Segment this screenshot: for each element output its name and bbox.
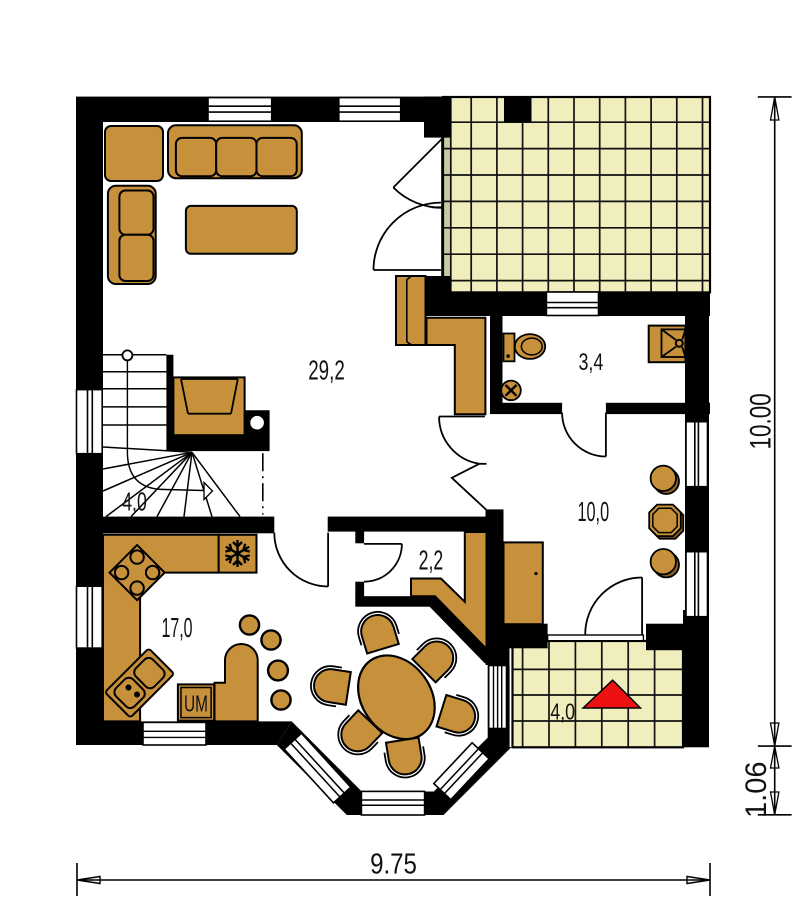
svg-text:10,0: 10,0 (578, 495, 610, 527)
svg-text:9.75: 9.75 (370, 847, 417, 880)
svg-text:10.00: 10.00 (743, 393, 777, 449)
svg-text:17,0: 17,0 (161, 611, 192, 643)
svg-text:1.06: 1.06 (740, 761, 773, 818)
svg-text:3,4: 3,4 (578, 348, 603, 375)
svg-text:29,2: 29,2 (308, 355, 345, 387)
svg-text:UM: UM (184, 692, 208, 718)
svg-text:4,0: 4,0 (550, 699, 575, 725)
svg-text:2,2: 2,2 (419, 544, 444, 575)
svg-text:4,0: 4,0 (122, 487, 147, 516)
